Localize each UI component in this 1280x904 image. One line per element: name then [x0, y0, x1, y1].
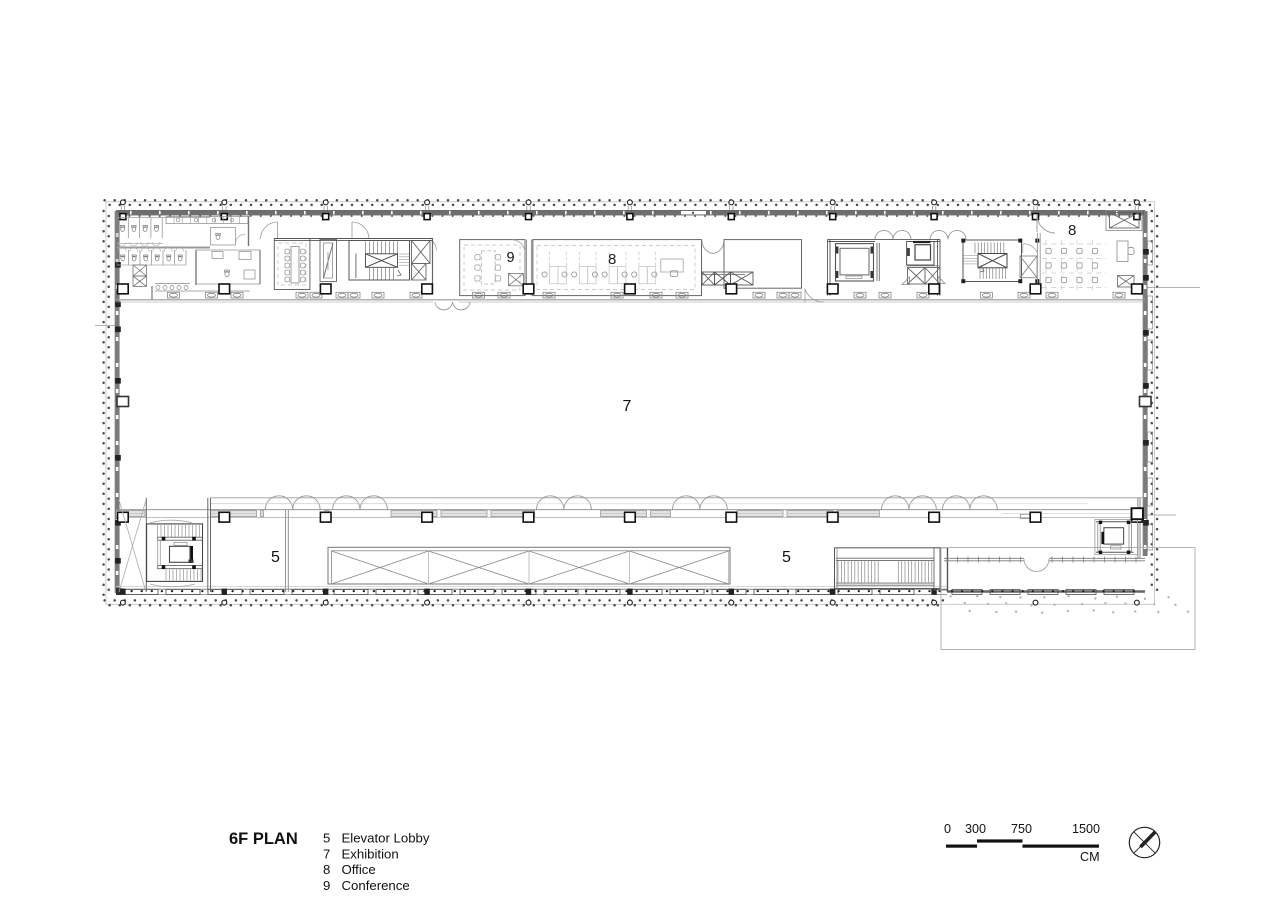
svg-text:Elevator Lobby: Elevator Lobby	[342, 831, 430, 846]
svg-text:Exhibition: Exhibition	[342, 846, 399, 861]
svg-text:9: 9	[507, 250, 515, 266]
svg-text:5: 5	[323, 831, 330, 846]
svg-text:5: 5	[271, 549, 280, 566]
svg-text:7: 7	[623, 398, 632, 415]
svg-text:7: 7	[323, 846, 330, 861]
svg-text:Conference: Conference	[342, 878, 410, 893]
svg-text:8: 8	[323, 862, 330, 877]
svg-text:Office: Office	[342, 862, 376, 877]
svg-text:750: 750	[1011, 822, 1032, 836]
svg-text:300: 300	[965, 822, 986, 836]
svg-text:0: 0	[944, 822, 951, 836]
svg-text:8: 8	[608, 251, 616, 268]
svg-text:1500: 1500	[1072, 822, 1100, 836]
svg-text:5: 5	[782, 549, 791, 566]
svg-text:9: 9	[323, 878, 330, 893]
svg-text:CM: CM	[1080, 850, 1100, 864]
svg-text:6F PLAN: 6F PLAN	[229, 830, 298, 848]
svg-text:8: 8	[1068, 222, 1076, 239]
